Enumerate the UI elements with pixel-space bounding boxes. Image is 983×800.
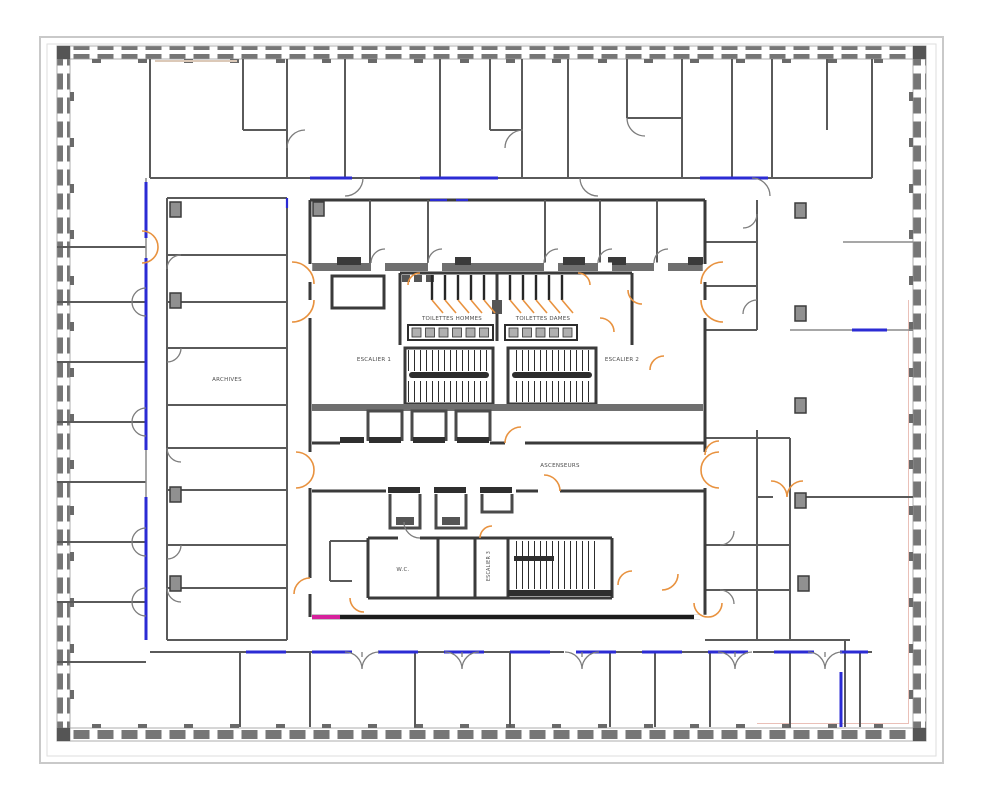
elevator-sill xyxy=(480,487,512,493)
elevator-car xyxy=(442,517,460,525)
label-wc: W.C. xyxy=(396,567,409,573)
corner-nw xyxy=(57,46,70,59)
stair-1-landing xyxy=(409,372,489,378)
mullion-ticks-right xyxy=(909,63,913,724)
exterior-wall-bottom xyxy=(57,728,926,741)
elevator-car xyxy=(396,517,414,525)
floor-plan-canvas: TOILETTES HOMMES TOILETTES DAMES ESCALIE… xyxy=(0,0,983,800)
lavatory-row-left xyxy=(408,325,493,340)
stair-2-treads-lower xyxy=(511,381,593,402)
corner-sw xyxy=(57,728,70,741)
core-corridor-wall-band-top xyxy=(312,263,703,271)
stair-3-landing xyxy=(514,556,554,561)
floor-plan-page: TOILETTES HOMMES TOILETTES DAMES ESCALIE… xyxy=(0,0,983,800)
elevator-sill xyxy=(434,487,466,493)
elevator-sill xyxy=(369,437,401,443)
mullion-ticks-left xyxy=(70,63,74,724)
label-archives: ARCHIVES xyxy=(212,377,242,383)
stair-3-treads xyxy=(514,541,596,589)
elevator-sill xyxy=(340,437,364,443)
label-escalier-2: ESCALIER 2 xyxy=(605,357,639,363)
elevator-sill xyxy=(413,437,445,443)
label-escalier-1: ESCALIER 1 xyxy=(357,357,391,363)
stair-1-treads-lower xyxy=(408,381,490,402)
corner-ne xyxy=(913,46,926,59)
exterior-wall-left xyxy=(57,46,70,741)
label-toilettes-hommes: TOILETTES HOMMES xyxy=(421,316,482,322)
mullion-ticks-bottom xyxy=(70,724,913,728)
stair-2-landing xyxy=(512,372,592,378)
label-ascenseurs: ASCENSEURS xyxy=(540,463,580,469)
stair-2-treads-upper xyxy=(511,350,593,371)
lavatory-row-right xyxy=(505,325,577,340)
corner-se xyxy=(913,728,926,741)
stair-1-treads-upper xyxy=(408,350,490,371)
label-toilettes-dames: TOILETTES DAMES xyxy=(515,316,571,322)
stair-3-base-wall xyxy=(508,590,612,596)
exterior-wall-right xyxy=(913,46,926,741)
elevator-sill xyxy=(457,437,489,443)
exterior-wall-top xyxy=(57,46,926,59)
label-escalier-3: ESCALIER 3 xyxy=(486,551,492,581)
elevator-sill xyxy=(388,487,420,493)
